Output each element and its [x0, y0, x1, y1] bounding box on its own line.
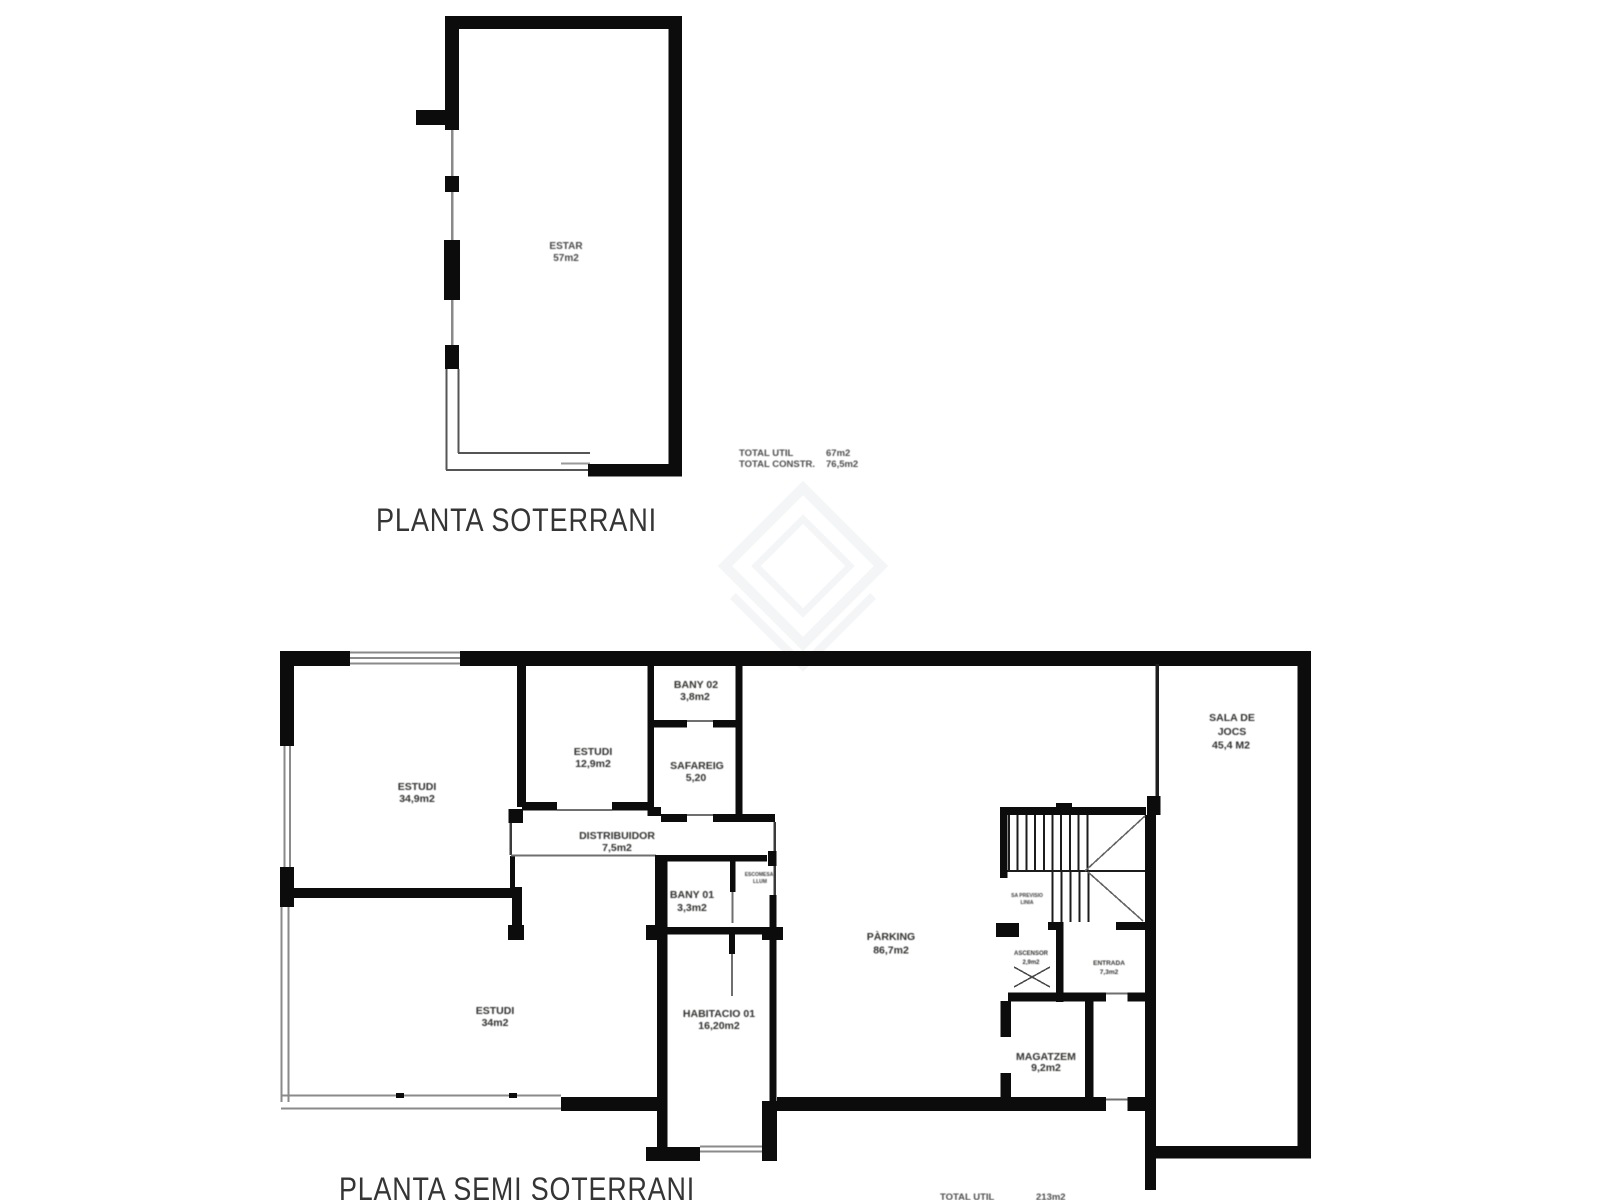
svg-text:67m2: 67m2 — [826, 448, 850, 459]
svg-text:TOTAL UTIL: TOTAL UTIL — [940, 1192, 995, 1200]
svg-text:3,3m2: 3,3m2 — [677, 902, 707, 914]
svg-text:LINIA: LINIA — [1020, 900, 1033, 906]
svg-text:45,4 M2: 45,4 M2 — [1212, 740, 1250, 752]
svg-text:34,9m2: 34,9m2 — [399, 793, 435, 805]
svg-text:3,8m2: 3,8m2 — [680, 691, 710, 703]
svg-text:ENTRADA: ENTRADA — [1093, 960, 1125, 967]
svg-text:9,2m2: 9,2m2 — [1031, 1062, 1061, 1074]
svg-text:ESTUDI: ESTUDI — [398, 781, 437, 793]
svg-text:5,20: 5,20 — [686, 772, 707, 784]
svg-text:PLANTA SOTERRANI: PLANTA SOTERRANI — [376, 502, 657, 538]
svg-text:ESTUDI: ESTUDI — [476, 1005, 515, 1017]
svg-text:BANY 01: BANY 01 — [670, 889, 714, 901]
svg-text:34m2: 34m2 — [482, 1017, 509, 1029]
svg-text:SA PREVISIO: SA PREVISIO — [1011, 893, 1043, 899]
svg-text:HABITACIO 01: HABITACIO 01 — [683, 1008, 755, 1020]
svg-text:76,5m2: 76,5m2 — [826, 459, 858, 470]
svg-text:ESTUDI: ESTUDI — [574, 746, 613, 758]
svg-text:DISTRIBUIDOR: DISTRIBUIDOR — [579, 830, 655, 842]
svg-text:213m2: 213m2 — [1036, 1192, 1066, 1200]
svg-text:SAFAREIG: SAFAREIG — [670, 760, 724, 772]
svg-text:LLUM: LLUM — [753, 879, 767, 885]
svg-text:7,5m2: 7,5m2 — [602, 842, 632, 854]
svg-text:PLANTA SEMI SOTERRANI: PLANTA SEMI SOTERRANI — [339, 1171, 695, 1200]
svg-text:2,9m2: 2,9m2 — [1022, 960, 1040, 966]
svg-text:ASCENSOR: ASCENSOR — [1014, 951, 1049, 957]
svg-text:16,20m2: 16,20m2 — [698, 1020, 740, 1032]
svg-text:12,9m2: 12,9m2 — [575, 758, 611, 770]
svg-text:TOTAL UTIL: TOTAL UTIL — [739, 448, 794, 459]
svg-text:ESCOMESA: ESCOMESA — [745, 872, 774, 878]
svg-text:JOCS: JOCS — [1218, 726, 1247, 738]
svg-text:TOTAL CONSTR.: TOTAL CONSTR. — [739, 459, 815, 470]
svg-text:BANY 02: BANY 02 — [674, 679, 718, 691]
svg-text:PÀRKING: PÀRKING — [867, 930, 915, 943]
svg-text:ESTAR: ESTAR — [549, 241, 583, 252]
svg-text:57m2: 57m2 — [553, 253, 579, 264]
svg-text:7,3m2: 7,3m2 — [1100, 969, 1119, 976]
svg-text:SALA DE: SALA DE — [1209, 712, 1255, 724]
svg-text:86,7m2: 86,7m2 — [873, 945, 909, 957]
